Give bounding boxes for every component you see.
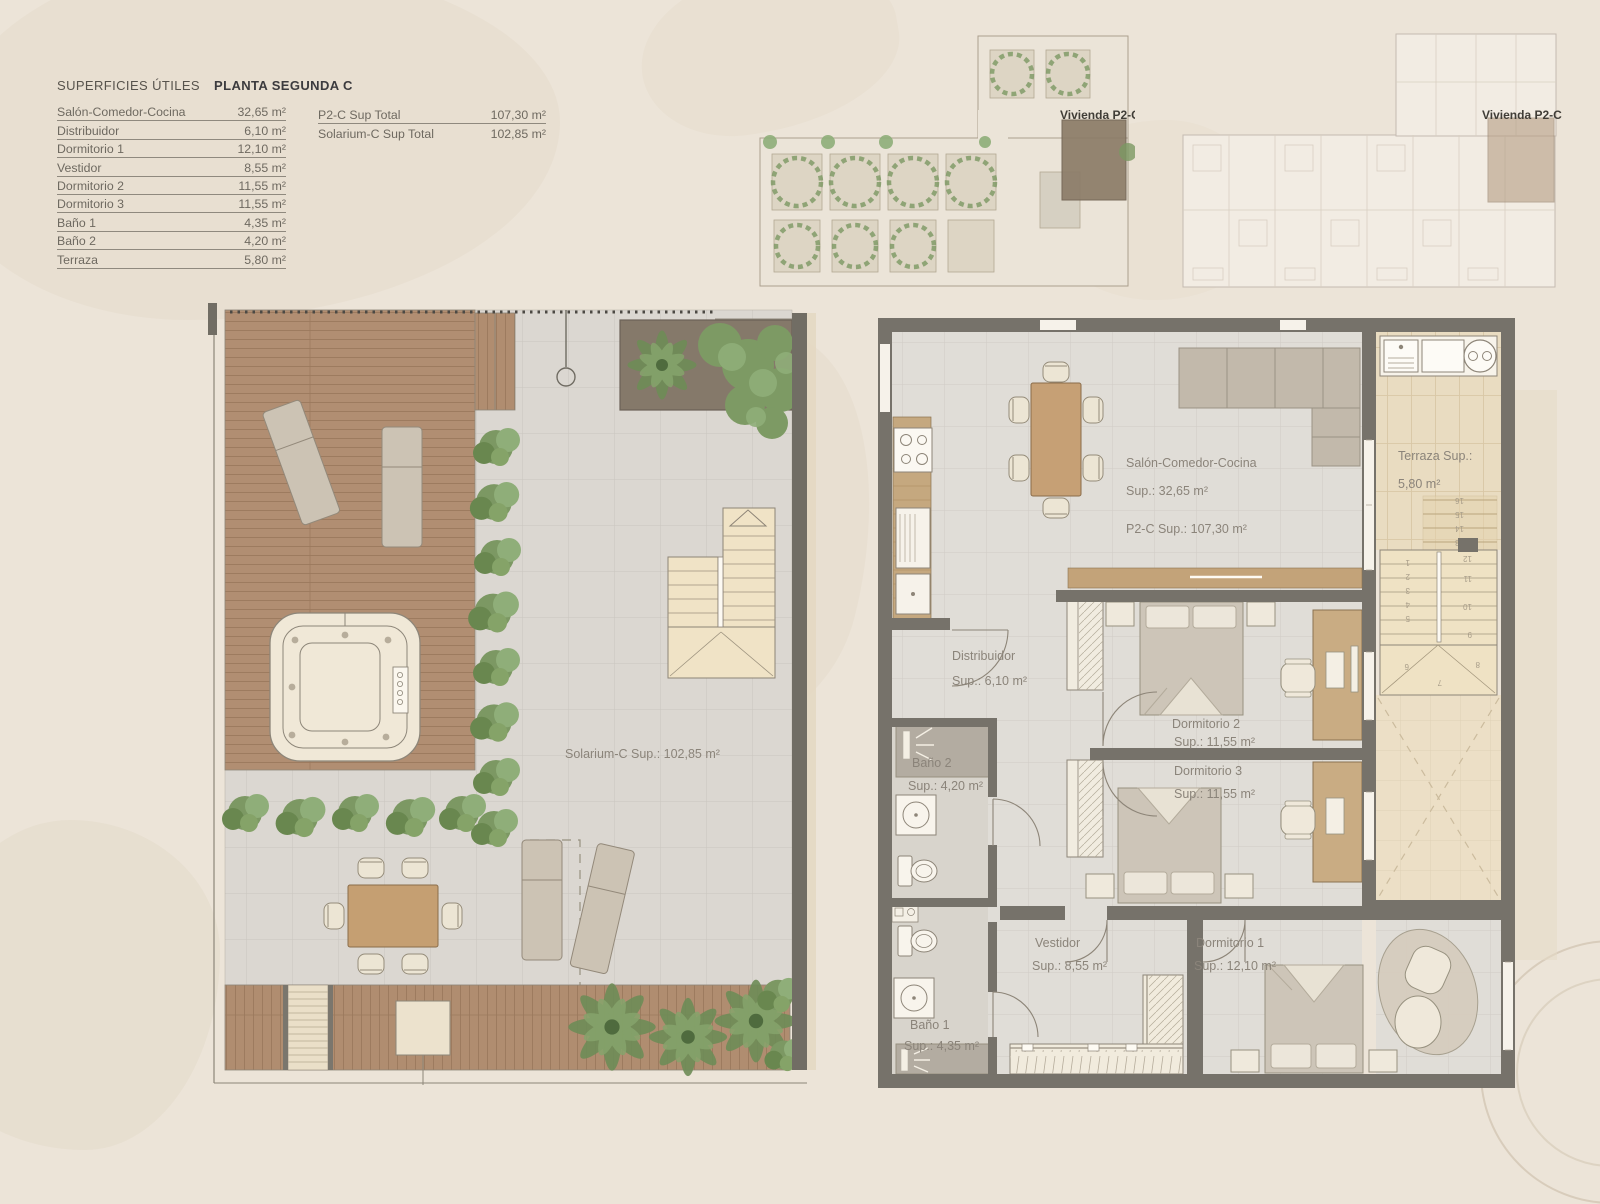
totals-table: P2-C Sup Total 107,30 m² Solarium-C Sup … [318,106,546,142]
room-value: 11,55 m² [238,197,286,211]
room-value: 5,80 m² [244,253,286,267]
svg-text:3: 3 [1405,586,1410,595]
apartment-floor-plan: 1 2 3 4 5 6 7 8 9 10 11 12 13 14 15 16 [860,300,1572,1115]
table-row: Solarium-C Sup Total 102,85 m² [318,124,546,141]
room-value: 4,20 m² [244,234,286,248]
svg-text:15: 15 [1455,510,1464,519]
floor-plan-sheet: { "page": {"background": "#ece4d8"}, "le… [0,0,1600,1131]
legend-title-plan: PLANTA SEGUNDA C [214,78,353,93]
kitchen-counter [893,417,932,620]
area-table: Salón-Comedor-Cocina 32,65 m² Distribuid… [57,103,286,269]
room-sup: Sup.: 12,10 m² [1194,959,1276,973]
legend-title: SUPERFICIES ÚTILES PLANTA SEGUNDA C [57,78,286,93]
sun-lounger [522,840,562,960]
room-label: Baño 2 [57,234,96,248]
room-value: 4,35 m² [244,216,286,230]
svg-text:5: 5 [1405,614,1410,623]
deck-bench [475,313,515,410]
svg-text:9: 9 [1467,630,1472,639]
room-label: Salón-Comedor-Cocina [1126,456,1257,470]
solarium-area-label: Solarium-C Sup.: 102,85 m² [565,747,720,761]
deck-lounger [382,427,422,547]
cooktop-icon [894,428,932,472]
room-label: Vestidor [1035,936,1080,950]
nightstand [1369,1050,1397,1072]
closet-bedroom2 [1067,593,1103,690]
terrace-kitchenette [1380,336,1497,376]
svg-text:6: 6 [1404,662,1409,671]
svg-text:10: 10 [1463,602,1472,611]
room-sup: Sup.: 4,20 m² [908,779,983,793]
table-row: Dormitorio 1 12,10 m² [57,140,286,158]
table-row: Salón-Comedor-Cocina 32,65 m² [57,103,286,121]
table-row: Baño 2 4,20 m² [57,232,286,250]
overview-unit-label: Vivienda P2-C [1060,108,1135,122]
room-value: 32,65 m² [237,105,286,119]
room-value: 6,10 m² [244,124,286,138]
svg-text:12: 12 [1463,554,1472,563]
table-row: Terraza 5,80 m² [57,250,286,268]
svg-text:7: 7 [1437,678,1442,687]
total-value: 102,85 m² [491,127,546,141]
room-label: Dormitorio 3 [1174,764,1242,778]
nightstand [1231,1050,1259,1072]
table-row: P2-C Sup Total 107,30 m² [318,106,546,124]
room-label: Distribuidor [952,649,1015,663]
room-sup: Sup.: 11,55 m² [1174,735,1255,749]
room-label: Vestidor [57,161,101,175]
total-value: 107,30 m² [491,108,546,122]
room-label: Terraza Sup.: [1398,449,1472,463]
room-sup: 5,80 m² [1398,477,1440,491]
overview-highlight-unit [1062,120,1126,200]
room-label: Salón-Comedor-Cocina [57,105,186,119]
room-label: Baño 1 [910,1018,950,1032]
desk-chair [1281,801,1315,839]
nightstand [1106,602,1134,626]
kitchen-appliance-icon [896,508,930,568]
room-value: 12,10 m² [237,142,286,156]
table-row: Baño 1 4,35 m² [57,213,286,231]
nightstand [1225,874,1253,898]
room-sup: Sup.: 32,65 m² [1126,484,1208,498]
room-value: 8,55 m² [244,161,286,175]
building-overview-floor: Vivienda P2-C [1168,20,1566,292]
neighbor-band [1515,390,1557,960]
svg-text:4: 4 [1405,600,1410,609]
room-label: Dormitorio 2 [57,179,124,193]
nightstand [1086,874,1114,898]
area-legend: SUPERFICIES ÚTILES PLANTA SEGUNDA C Saló… [57,78,286,269]
table-row: Dormitorio 2 11,55 m² [57,177,286,195]
svg-text:14: 14 [1455,524,1464,533]
room-label: Dormitorio 1 [1196,936,1264,950]
total-label: Solarium-C Sup Total [318,127,434,141]
room-label: Dormitorio 1 [57,142,124,156]
svg-text:8: 8 [1475,660,1480,669]
table-row: Distribuidor 6,10 m² [57,121,286,139]
room-value: 11,55 m² [238,179,286,193]
laundry-niche [892,905,918,922]
sink-icon [1384,340,1418,372]
overview-highlight-unit [1488,118,1554,202]
armchair [1395,996,1441,1048]
nightstand [1247,602,1275,626]
room-label: Dormitorio 2 [1172,717,1240,731]
table-row: Vestidor 8,55 m² [57,158,286,176]
table-row: Dormitorio 3 11,55 m² [57,195,286,213]
svg-text:16: 16 [1455,496,1464,505]
room-label: Baño 2 [912,756,952,770]
building-overview-solarium: Vivienda P2-C [740,20,1135,292]
legend-title-main: SUPERFICIES ÚTILES [57,78,200,93]
svg-text:1: 1 [1405,558,1410,567]
closet-bedroom3 [1067,760,1103,857]
outer-band [807,313,816,1070]
room-label: Terraza [57,253,98,267]
room-sup: Sup.: 4,35 m² [904,1039,979,1053]
room-sup: Sup.: 6,10 m² [952,674,1027,688]
room-label: Distribuidor [57,124,119,138]
solarium-floor-plan: Solarium-C Sup.: 102,85 m² [200,295,818,1110]
total-label: P2-C Sup Total [318,108,400,122]
room-label: Dormitorio 3 [57,197,124,211]
sliding-door-band [1068,568,1362,588]
watermark-blob [0,820,220,1150]
room-label: Baño 1 [57,216,96,230]
desk-chair [1281,659,1315,697]
svg-text:11: 11 [1463,574,1472,583]
room-sup: Sup.: 11,55 m² [1174,787,1255,801]
room-sup: Sup.: 8,55 m² [1032,959,1107,973]
svg-text:2: 2 [1405,572,1410,581]
overview-unit-label: Vivienda P2-C [1482,108,1562,122]
palm-tree-icon [628,331,697,400]
apartment-total-label: P2-C Sup.: 107,30 m² [1126,522,1247,536]
jacuzzi [270,613,420,761]
